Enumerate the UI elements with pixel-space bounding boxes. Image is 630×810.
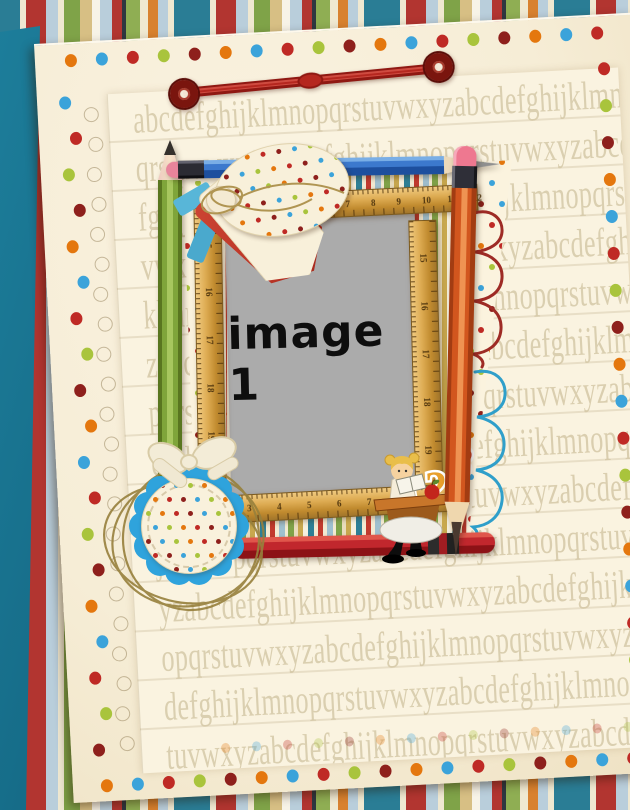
polka-dot: [66, 240, 79, 254]
ruler-number: 6: [337, 498, 342, 508]
polka-dot: [234, 188, 240, 194]
spiral-loop: [93, 286, 109, 302]
spiral-loop: [97, 316, 113, 332]
polka-dot: [623, 722, 630, 732]
polka-dot: [312, 41, 325, 55]
polka-dot: [153, 553, 158, 558]
polka-dot: [287, 163, 293, 169]
spiral-loop: [91, 196, 107, 212]
polka-dot: [188, 511, 193, 516]
polka-dot: [167, 553, 172, 558]
spiral-loop: [83, 107, 99, 123]
polka-dot: [153, 497, 158, 502]
polka-dot: [59, 96, 72, 110]
spiral-loop: [110, 556, 126, 572]
spiral-loop: [90, 227, 106, 243]
spiral-loop: [113, 616, 129, 632]
polka-dot: [271, 214, 277, 220]
spiral-loop: [102, 466, 118, 482]
ruler-number: 8: [371, 197, 376, 207]
ruler-number: 17: [205, 335, 215, 344]
polka-dot: [193, 774, 206, 788]
polka-dot: [292, 194, 298, 200]
polka-dot: [209, 497, 214, 502]
polka-dot: [339, 186, 345, 192]
stitch-border: [147, 484, 231, 568]
polka-dot: [230, 483, 235, 488]
ruler-number: 3: [247, 503, 252, 513]
scrapbook-page: abcdefghijklmnopqrstuvwxyzabcdefghijklmn…: [0, 0, 630, 810]
polka-dot: [70, 312, 83, 326]
polka-dot: [348, 766, 361, 780]
spiral-loop: [87, 167, 103, 183]
polka-dot: [146, 539, 151, 544]
polka-dot: [181, 525, 186, 530]
polka-dot: [188, 539, 193, 544]
ruler-number: 18: [422, 397, 432, 406]
polka-dot: [81, 528, 94, 542]
polka-dot: [216, 483, 221, 488]
spiral-loop: [99, 406, 115, 422]
polka-dot: [160, 567, 165, 572]
polka-dot: [292, 146, 298, 152]
polka-dot: [127, 51, 140, 65]
green-pencil: [158, 140, 182, 492]
polka-dot: [160, 483, 165, 488]
polka-dot: [216, 511, 221, 516]
polka-dot: [74, 384, 87, 398]
polka-dot: [230, 567, 235, 572]
polka-dot: [329, 172, 335, 178]
polka-dot: [188, 567, 193, 572]
spiral-loop: [116, 676, 132, 692]
polka-dot: [229, 157, 235, 163]
polka-dot: [146, 511, 151, 516]
ruler-number: 7: [345, 199, 350, 209]
polka-dot: [160, 539, 165, 544]
ruler-number: 17: [421, 349, 431, 358]
polka-dot: [70, 132, 83, 146]
polka-dot: [499, 201, 505, 207]
polka-dot: [93, 743, 106, 757]
polka-dot: [223, 174, 229, 180]
polka-dot: [276, 149, 282, 155]
polka-dot: [498, 31, 511, 45]
polka-dot: [334, 155, 340, 161]
polka-dot: [478, 327, 484, 333]
polka-dot: [410, 763, 423, 777]
polka-dot: [343, 39, 356, 53]
spiral-loop: [88, 137, 104, 153]
spiral-loop: [115, 706, 131, 722]
spiral-loop: [119, 736, 135, 752]
polka-dot: [472, 759, 485, 773]
polka-dot: [255, 771, 268, 785]
polka-dot: [239, 171, 245, 177]
spiral-loop: [109, 586, 125, 602]
polka-dot: [591, 26, 604, 40]
polka-dot: [181, 553, 186, 558]
polka-dot: [565, 755, 578, 769]
photo-label: image 1: [227, 305, 419, 411]
grommet-left-icon: [169, 79, 200, 110]
polka-dot: [209, 525, 214, 530]
ruler-number: 5: [307, 500, 312, 510]
polka-dot: [65, 54, 78, 68]
polka-dot: [302, 160, 308, 166]
ruler-number: 7: [367, 497, 372, 507]
polka-dot: [188, 483, 193, 488]
polka-dot: [489, 264, 495, 270]
polka-dot: [101, 779, 114, 793]
polka-dot: [216, 567, 221, 572]
polka-dot: [266, 183, 272, 189]
polka-dot: [163, 776, 176, 790]
polka-dot: [181, 497, 186, 502]
polka-dot: [63, 168, 76, 182]
polka-dot: [489, 180, 495, 186]
polka-dot: [560, 28, 573, 42]
polka-dot: [174, 539, 179, 544]
polka-dot: [255, 217, 261, 223]
polka-dot: [534, 756, 547, 770]
polka-dot: [100, 707, 113, 721]
polka-dot: [467, 33, 480, 47]
polka-dot: [489, 222, 495, 228]
polka-dot: [324, 189, 330, 195]
polka-dot: [157, 49, 170, 63]
polka-dot: [529, 29, 542, 43]
polka-dot: [167, 497, 172, 502]
polka-dot: [303, 209, 309, 215]
polka-dot: [78, 456, 91, 470]
polka-dot: [89, 671, 102, 685]
spiral-loop: [104, 436, 120, 452]
polka-dot: [286, 769, 299, 783]
polka-dot: [441, 761, 454, 775]
polka-dot: [202, 483, 207, 488]
grommet-right-icon: [423, 52, 454, 83]
spiral-loop: [112, 646, 128, 662]
ruler-number: 9: [427, 494, 432, 504]
polka-dot: [96, 52, 109, 66]
polka-dot: [223, 497, 228, 502]
polka-dot: [260, 151, 266, 157]
polka-dot: [230, 539, 235, 544]
spiral-loop: [94, 256, 110, 272]
ruler-number: 15: [418, 253, 428, 262]
polka-dot: [489, 306, 495, 312]
polka-dot: [478, 369, 484, 375]
polka-dot: [216, 539, 221, 544]
polka-dot: [308, 192, 314, 198]
polka-dot: [250, 44, 263, 58]
polka-dot: [261, 200, 267, 206]
polka-dot: [85, 419, 98, 433]
polka-dot: [81, 347, 94, 361]
polka-dot: [379, 764, 392, 778]
polka-dot: [255, 169, 261, 175]
polka-dot: [250, 186, 256, 192]
polka-dot: [503, 758, 516, 772]
ruler-number: 8: [397, 495, 402, 505]
polka-dot: [160, 511, 165, 516]
polka-dot: [230, 511, 235, 516]
polka-dot: [281, 180, 287, 186]
polka-dot: [271, 166, 277, 172]
polka-dot: [245, 203, 251, 209]
ruler-number: 4: [277, 502, 282, 512]
polka-dot: [92, 563, 105, 577]
polka-dot: [89, 491, 102, 505]
polka-dot: [195, 497, 200, 502]
polka-dot: [317, 768, 330, 782]
spiral-loop: [105, 526, 121, 542]
polka-dot: [153, 525, 158, 530]
polka-dot: [188, 47, 201, 61]
polka-dot: [478, 243, 484, 249]
polka-dot: [287, 212, 293, 218]
polka-dot: [318, 206, 324, 212]
polka-dot: [219, 46, 232, 60]
polka-dot: [202, 539, 207, 544]
polka-dot: [282, 229, 288, 235]
polka-dot: [174, 567, 179, 572]
polka-dot: [374, 38, 387, 52]
polka-dot: [96, 635, 109, 649]
polka-dot: [436, 34, 449, 48]
polka-dot: [276, 197, 282, 203]
polka-dot: [132, 777, 145, 791]
polka-dot: [195, 553, 200, 558]
ruler-number: 19: [423, 445, 433, 454]
polka-dot: [209, 553, 214, 558]
ruler-number: 18: [206, 383, 216, 392]
polka-dot: [596, 753, 609, 767]
ribbon-knot: [297, 71, 324, 89]
polka-dot: [85, 599, 98, 613]
polka-dot: [298, 226, 304, 232]
polka-dot: [240, 220, 246, 226]
polka-dot: [313, 175, 319, 181]
polka-dot: [146, 567, 151, 572]
ruler-number: 16: [419, 301, 429, 310]
spiral-loop: [96, 346, 112, 362]
polka-dot: [266, 232, 272, 238]
polka-dot: [202, 567, 207, 572]
polka-dot: [223, 525, 228, 530]
polka-dot: [318, 157, 324, 163]
polka-dot: [478, 285, 484, 291]
ruler-number: 10: [422, 195, 431, 205]
ruler-number: 16: [204, 287, 214, 296]
polka-dot: [307, 143, 313, 149]
spiral-loop: [107, 496, 123, 512]
polka-dot: [146, 483, 151, 488]
polka-dot: [334, 203, 340, 209]
polka-dot: [195, 525, 200, 530]
polka-dot: [202, 511, 207, 516]
polka-dot: [281, 42, 294, 56]
spiral-loop: [101, 376, 117, 392]
flower-center: [141, 478, 237, 574]
flower-bow-knot: [180, 454, 198, 470]
polka-dot: [297, 177, 303, 183]
polka-dot: [621, 505, 630, 519]
ruler-number: 9: [396, 196, 401, 206]
polka-dot: [77, 275, 90, 289]
polka-dot: [224, 772, 237, 786]
polka-dot: [619, 468, 630, 482]
polka-dot: [167, 525, 172, 530]
polka-dot: [405, 36, 418, 50]
polka-dot: [223, 553, 228, 558]
bow-knot: [206, 186, 236, 214]
polka-dot: [244, 154, 250, 160]
polka-dot: [174, 511, 179, 516]
polka-dot: [73, 204, 86, 218]
